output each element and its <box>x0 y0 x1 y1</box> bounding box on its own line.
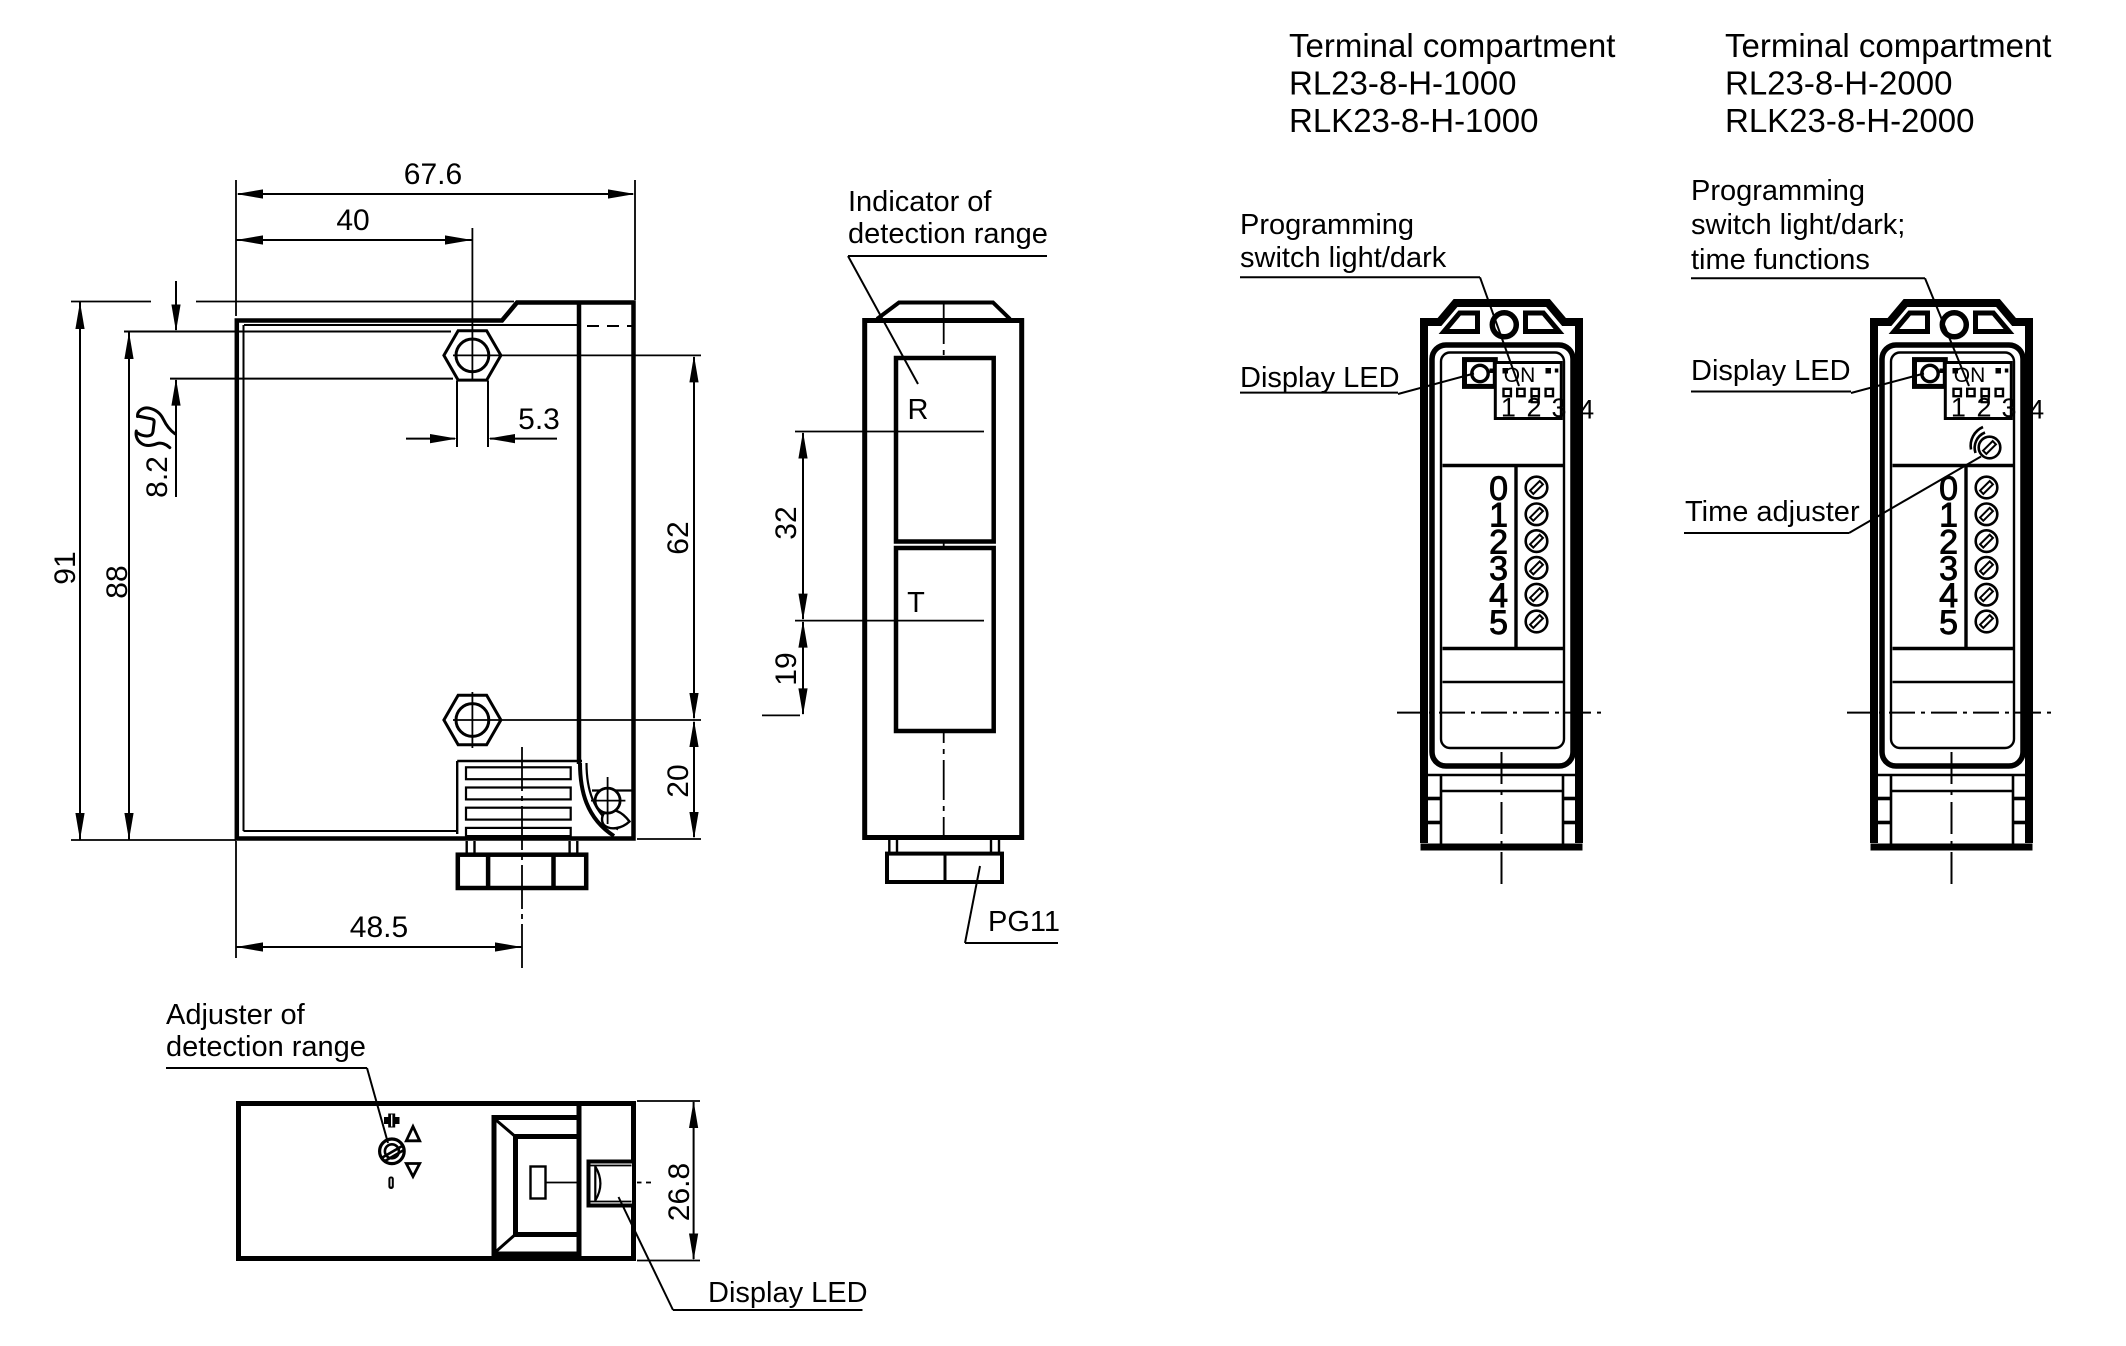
svg-text:32: 32 <box>770 506 803 539</box>
svg-text:Programming: Programming <box>1240 209 1414 241</box>
svg-text:Display LED: Display LED <box>708 1277 868 1309</box>
svg-text:ON: ON <box>1504 364 1536 387</box>
svg-text:20: 20 <box>662 764 695 797</box>
svg-text:Terminal compartment: Terminal compartment <box>1289 27 1615 64</box>
svg-text:4: 4 <box>1579 395 1594 425</box>
svg-text:detection range: detection range <box>848 218 1048 250</box>
svg-text:Indicator of: Indicator of <box>848 186 992 218</box>
svg-text:1: 1 <box>1951 393 1966 423</box>
svg-text:RL23-8-H-1000: RL23-8-H-1000 <box>1289 65 1516 102</box>
svg-text:detection range: detection range <box>166 1031 366 1063</box>
svg-text:8.2: 8.2 <box>141 456 174 498</box>
svg-text:RLK23-8-H-1000: RLK23-8-H-1000 <box>1289 102 1538 139</box>
svg-text:PG11: PG11 <box>988 906 1060 938</box>
svg-text:Adjuster of: Adjuster of <box>166 999 306 1031</box>
svg-text:T: T <box>907 587 925 619</box>
svg-text:time functions: time functions <box>1691 244 1870 276</box>
svg-text:19: 19 <box>770 652 803 685</box>
svg-text:5: 5 <box>1489 604 1508 642</box>
svg-text:48.5: 48.5 <box>350 911 408 944</box>
svg-text:91: 91 <box>49 551 82 584</box>
svg-text:Time adjuster: Time adjuster <box>1685 496 1860 528</box>
svg-text:67.6: 67.6 <box>404 158 462 191</box>
svg-text:1: 1 <box>1501 393 1516 423</box>
svg-text:5: 5 <box>1939 604 1958 642</box>
svg-text:RLK23-8-H-2000: RLK23-8-H-2000 <box>1725 102 1974 139</box>
svg-text:RL23-8-H-2000: RL23-8-H-2000 <box>1725 65 1952 102</box>
svg-text:2: 2 <box>1526 393 1541 423</box>
svg-text:Programming: Programming <box>1691 175 1865 207</box>
svg-text:Display LED: Display LED <box>1240 362 1400 394</box>
svg-text:R: R <box>908 394 929 426</box>
svg-text:3: 3 <box>1551 393 1566 423</box>
svg-text:switch light/dark;: switch light/dark; <box>1691 209 1905 241</box>
svg-text:Display LED: Display LED <box>1691 355 1851 387</box>
svg-text:26.8: 26.8 <box>663 1163 696 1221</box>
svg-text:88: 88 <box>101 565 134 598</box>
svg-text:3: 3 <box>2001 393 2016 423</box>
svg-text:2: 2 <box>1976 393 1991 423</box>
svg-text:62: 62 <box>662 521 695 554</box>
svg-text:5.3: 5.3 <box>518 403 560 436</box>
svg-text:4: 4 <box>2029 395 2044 425</box>
svg-text:switch light/dark: switch light/dark <box>1240 242 1447 274</box>
svg-text:40: 40 <box>336 204 369 237</box>
svg-text:ON: ON <box>1954 364 1986 387</box>
svg-text:Terminal compartment: Terminal compartment <box>1725 27 2051 64</box>
